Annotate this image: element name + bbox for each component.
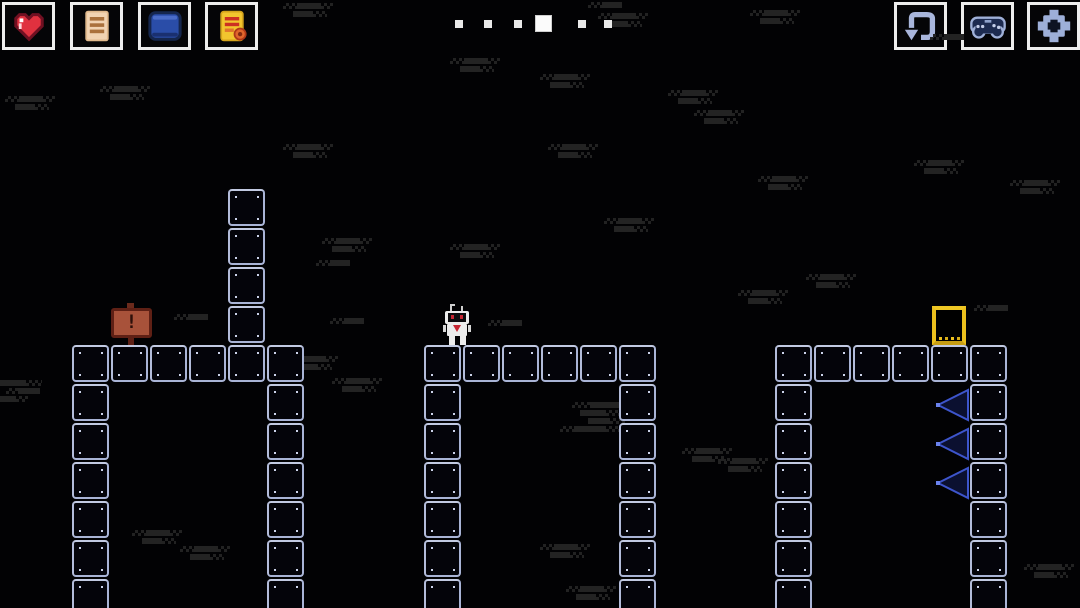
list-icon	[79, 8, 115, 44]
block	[775, 384, 812, 421]
block	[228, 189, 265, 226]
robot-face	[448, 313, 466, 322]
background-noise	[548, 144, 598, 160]
background-noise	[668, 90, 718, 106]
block	[970, 540, 1007, 577]
gamepad-icon	[968, 10, 1008, 42]
block	[267, 345, 304, 382]
background-noise	[694, 110, 744, 126]
spike-hazard	[934, 426, 970, 462]
game-screen: !	[0, 0, 1080, 608]
block	[619, 423, 656, 460]
spike-hazard	[934, 387, 970, 423]
background-noise	[488, 320, 522, 328]
background-noise	[566, 586, 616, 602]
progress-dot	[578, 20, 586, 28]
book-icon	[146, 9, 184, 43]
background-noise	[718, 458, 768, 474]
background-noise	[738, 290, 788, 306]
sign-label: !	[126, 311, 137, 333]
health-button[interactable]	[2, 2, 55, 50]
block	[267, 579, 304, 608]
block	[463, 345, 500, 382]
block	[72, 579, 109, 608]
background-noise	[316, 260, 350, 268]
block	[502, 345, 539, 382]
block	[267, 384, 304, 421]
progress-dot-active	[535, 15, 552, 32]
background-noise	[5, 96, 55, 112]
notes-button[interactable]	[205, 2, 258, 50]
heart-icon	[10, 9, 48, 43]
block	[111, 345, 148, 382]
background-noise	[450, 244, 500, 260]
block	[72, 423, 109, 460]
robot-arm-left	[443, 325, 446, 332]
sign-board: !	[111, 308, 152, 338]
block	[619, 384, 656, 421]
block	[267, 501, 304, 538]
background-noise	[330, 318, 364, 326]
block	[72, 501, 109, 538]
block	[775, 462, 812, 499]
background-noise	[806, 274, 856, 290]
background-noise	[540, 74, 590, 90]
block	[619, 540, 656, 577]
background-noise	[930, 34, 964, 42]
block	[424, 384, 461, 421]
background-noise	[332, 378, 382, 394]
block	[892, 345, 929, 382]
block	[970, 423, 1007, 460]
block	[72, 345, 109, 382]
robot-eye-left	[451, 315, 454, 319]
block	[189, 345, 226, 382]
block	[150, 345, 187, 382]
background-noise	[758, 176, 808, 192]
block	[228, 228, 265, 265]
background-noise	[604, 218, 654, 234]
block	[619, 345, 656, 382]
progress-dot	[514, 20, 522, 28]
block	[775, 579, 812, 608]
robot-tie	[453, 325, 461, 332]
progress-dot	[604, 20, 612, 28]
block	[853, 345, 890, 382]
robot-foot-left	[449, 336, 455, 345]
exit-door	[932, 306, 966, 345]
robot-eye-right	[460, 315, 463, 319]
block	[931, 345, 968, 382]
block	[814, 345, 851, 382]
block	[775, 540, 812, 577]
block	[228, 267, 265, 304]
progress-dot	[455, 20, 463, 28]
block	[72, 540, 109, 577]
settings-button[interactable]	[1027, 2, 1080, 50]
background-noise	[180, 546, 230, 562]
background-noise	[750, 10, 800, 26]
block	[970, 501, 1007, 538]
block	[424, 540, 461, 577]
block	[775, 423, 812, 460]
block	[228, 306, 265, 343]
background-noise	[974, 305, 1008, 313]
background-noise	[588, 2, 622, 10]
background-noise	[450, 58, 500, 74]
sign-leg	[128, 338, 134, 345]
background-noise	[540, 544, 590, 560]
background-noise	[322, 238, 372, 254]
gear-icon	[1036, 8, 1072, 44]
block	[541, 345, 578, 382]
spike-hazard	[934, 465, 970, 501]
note-icon	[214, 8, 250, 44]
player-robot	[441, 304, 473, 345]
controls-button[interactable]	[961, 2, 1014, 50]
background-noise	[1010, 180, 1060, 196]
block	[775, 501, 812, 538]
robot-foot-right	[460, 336, 466, 345]
block	[775, 345, 812, 382]
background-noise	[100, 86, 150, 102]
block	[619, 462, 656, 499]
block	[72, 384, 109, 421]
background-noise	[1024, 564, 1074, 580]
sign-post: !	[111, 303, 152, 345]
block	[619, 501, 656, 538]
robot-body	[447, 324, 467, 336]
progress-dot	[484, 20, 492, 28]
block	[72, 462, 109, 499]
block	[424, 423, 461, 460]
restart-button[interactable]	[894, 2, 947, 50]
block	[970, 345, 1007, 382]
robot-arm-right	[468, 325, 471, 332]
block	[424, 501, 461, 538]
background-noise	[174, 314, 208, 322]
block	[970, 579, 1007, 608]
background-noise	[0, 380, 42, 404]
background-noise	[132, 530, 182, 546]
block	[424, 345, 461, 382]
block	[267, 423, 304, 460]
block	[424, 579, 461, 608]
block	[970, 384, 1007, 421]
background-noise	[283, 3, 333, 19]
background-noise	[914, 160, 964, 176]
block	[970, 462, 1007, 499]
block	[267, 540, 304, 577]
block	[228, 345, 265, 382]
robot-head	[445, 311, 469, 324]
background-noise	[283, 144, 333, 160]
block	[619, 579, 656, 608]
block	[267, 462, 304, 499]
block	[424, 462, 461, 499]
block	[580, 345, 617, 382]
menu-list-button[interactable]	[70, 2, 123, 50]
journal-button[interactable]	[138, 2, 191, 50]
